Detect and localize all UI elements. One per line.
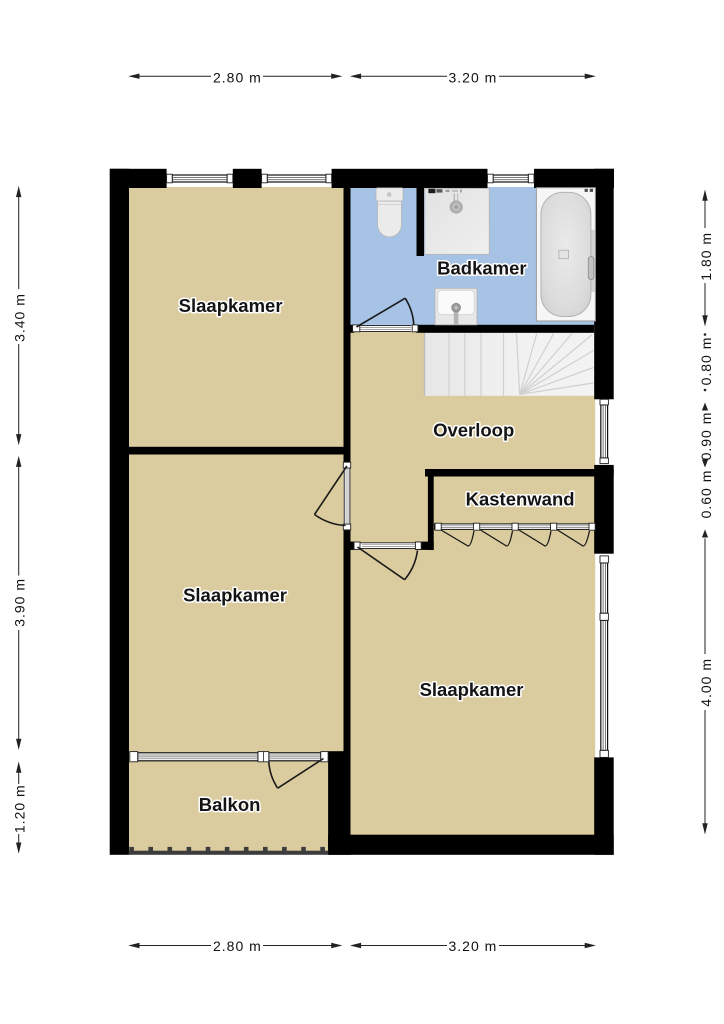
svg-text:Slaapkamer: Slaapkamer <box>179 295 283 316</box>
svg-text:0.80 m: 0.80 m <box>698 337 714 386</box>
svg-text:Balkon: Balkon <box>199 794 261 815</box>
svg-text:Kastenwand: Kastenwand <box>466 489 575 510</box>
svg-text:Slaapkamer: Slaapkamer <box>420 679 524 700</box>
svg-text:3.20 m: 3.20 m <box>448 938 497 954</box>
svg-text:Slaapkamer: Slaapkamer <box>183 585 287 606</box>
svg-text:3.20 m: 3.20 m <box>448 69 497 85</box>
svg-text:1.80 m: 1.80 m <box>698 232 714 281</box>
svg-text:1.20 m: 1.20 m <box>11 784 27 833</box>
svg-text:3.40 m: 3.40 m <box>11 293 27 342</box>
svg-text:3.90 m: 3.90 m <box>11 578 27 627</box>
svg-text:Overloop: Overloop <box>433 419 514 440</box>
svg-text:0.90 m: 0.90 m <box>698 412 714 461</box>
svg-text:2.80 m: 2.80 m <box>213 938 262 954</box>
svg-text:Badkamer: Badkamer <box>437 258 526 279</box>
svg-text:4.00 m: 4.00 m <box>698 658 714 707</box>
svg-text:2.80 m: 2.80 m <box>213 69 262 85</box>
svg-text:0.60 m: 0.60 m <box>698 470 714 519</box>
